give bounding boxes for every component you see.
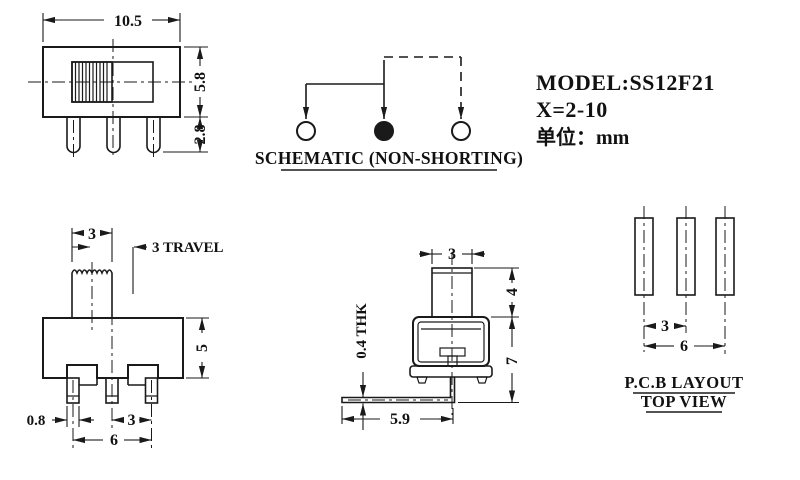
title-block: MODEL:SS12F21 X=2-10 单位：mm	[536, 70, 715, 149]
dim-label-pin-pitch: 3	[128, 412, 136, 429]
pcb-slots	[635, 218, 734, 295]
dim-label-pin-width: 0.8	[27, 413, 46, 429]
end-view: 3 4 7 0.4 THK 5.9	[342, 246, 521, 430]
dim-side-pin-pitch: 3	[112, 412, 152, 429]
x-range-label: X=2-10	[536, 97, 608, 122]
dim-label-end-knob: 3	[448, 246, 456, 263]
dim-end-thickness: 0.4 THK	[354, 303, 370, 430]
pcb-centerlines	[644, 206, 725, 354]
dim-side-pin-span: 6	[73, 432, 152, 449]
pcb-layout-title: P.C.B LAYOUT	[625, 373, 744, 392]
dim-label-pcb-span: 6	[680, 338, 688, 355]
end-base-plate	[410, 366, 492, 377]
dim-side-travel: 3 TRAVEL	[72, 240, 224, 294]
dim-label-front-height: 5.8	[192, 72, 209, 92]
pcb-top-view-label: TOP VIEW	[641, 392, 727, 411]
end-body-outline	[413, 317, 489, 366]
dim-pcb-span: 6	[644, 338, 725, 355]
dim-label-pcb-pitch: 3	[661, 318, 669, 335]
dim-label-lead-length: 5.9	[390, 411, 410, 428]
dim-label-travel: 3 TRAVEL	[152, 240, 224, 256]
schematic-caption: SCHEMATIC (NON-SHORTING)	[255, 148, 523, 168]
terminal-open-left	[297, 122, 315, 140]
dim-label-side-body: 5	[194, 344, 211, 352]
side-view: 3 3 TRAVEL 5 0.8 3	[27, 226, 224, 449]
unit-label: 单位：mm	[536, 125, 630, 149]
pcb-layout: 3 6 P.C.B LAYOUT TOP VIEW	[625, 206, 744, 412]
dim-label-end-knob-height: 4	[504, 288, 521, 296]
dim-side-pin-width: 0.8	[27, 406, 94, 429]
model-label: MODEL:SS12F21	[536, 70, 715, 95]
dim-front-pin-length: 2.8	[163, 117, 209, 152]
dim-label-front-width: 10.5	[114, 13, 142, 30]
dim-label-pin-span: 6	[110, 432, 118, 449]
dim-label-side-knob: 3	[88, 226, 96, 243]
dim-front-width: 10.5	[43, 13, 180, 42]
dim-end-knob-height: 4	[474, 268, 521, 317]
end-bent-lead	[342, 377, 455, 403]
side-body-outline	[43, 318, 183, 378]
dim-label-thickness: 0.4 THK	[354, 303, 370, 359]
front-view: 10.5 5.8 2.8	[28, 13, 209, 158]
dim-side-body-height: 5	[186, 318, 211, 378]
dim-label-front-pin: 2.8	[192, 125, 209, 145]
dim-front-height: 5.8	[184, 47, 209, 117]
schematic: SCHEMATIC (NON-SHORTING)	[255, 57, 523, 170]
drawing-sheet: 10.5 5.8 2.8 SCHEMATIC (NON-SHORTING)	[0, 0, 800, 480]
terminal-open-right	[452, 122, 470, 140]
dim-side-knob-width: 3	[72, 226, 112, 262]
technical-drawing-canvas: 10.5 5.8 2.8 SCHEMATIC (NON-SHORTING)	[0, 0, 800, 480]
dim-pcb-pitch: 3	[644, 318, 686, 335]
dim-end-lead-length: 5.9	[342, 406, 453, 428]
terminal-filled-center	[375, 122, 394, 141]
dim-label-end-body-height: 7	[504, 357, 521, 365]
dim-end-knob-width: 3	[419, 246, 485, 264]
